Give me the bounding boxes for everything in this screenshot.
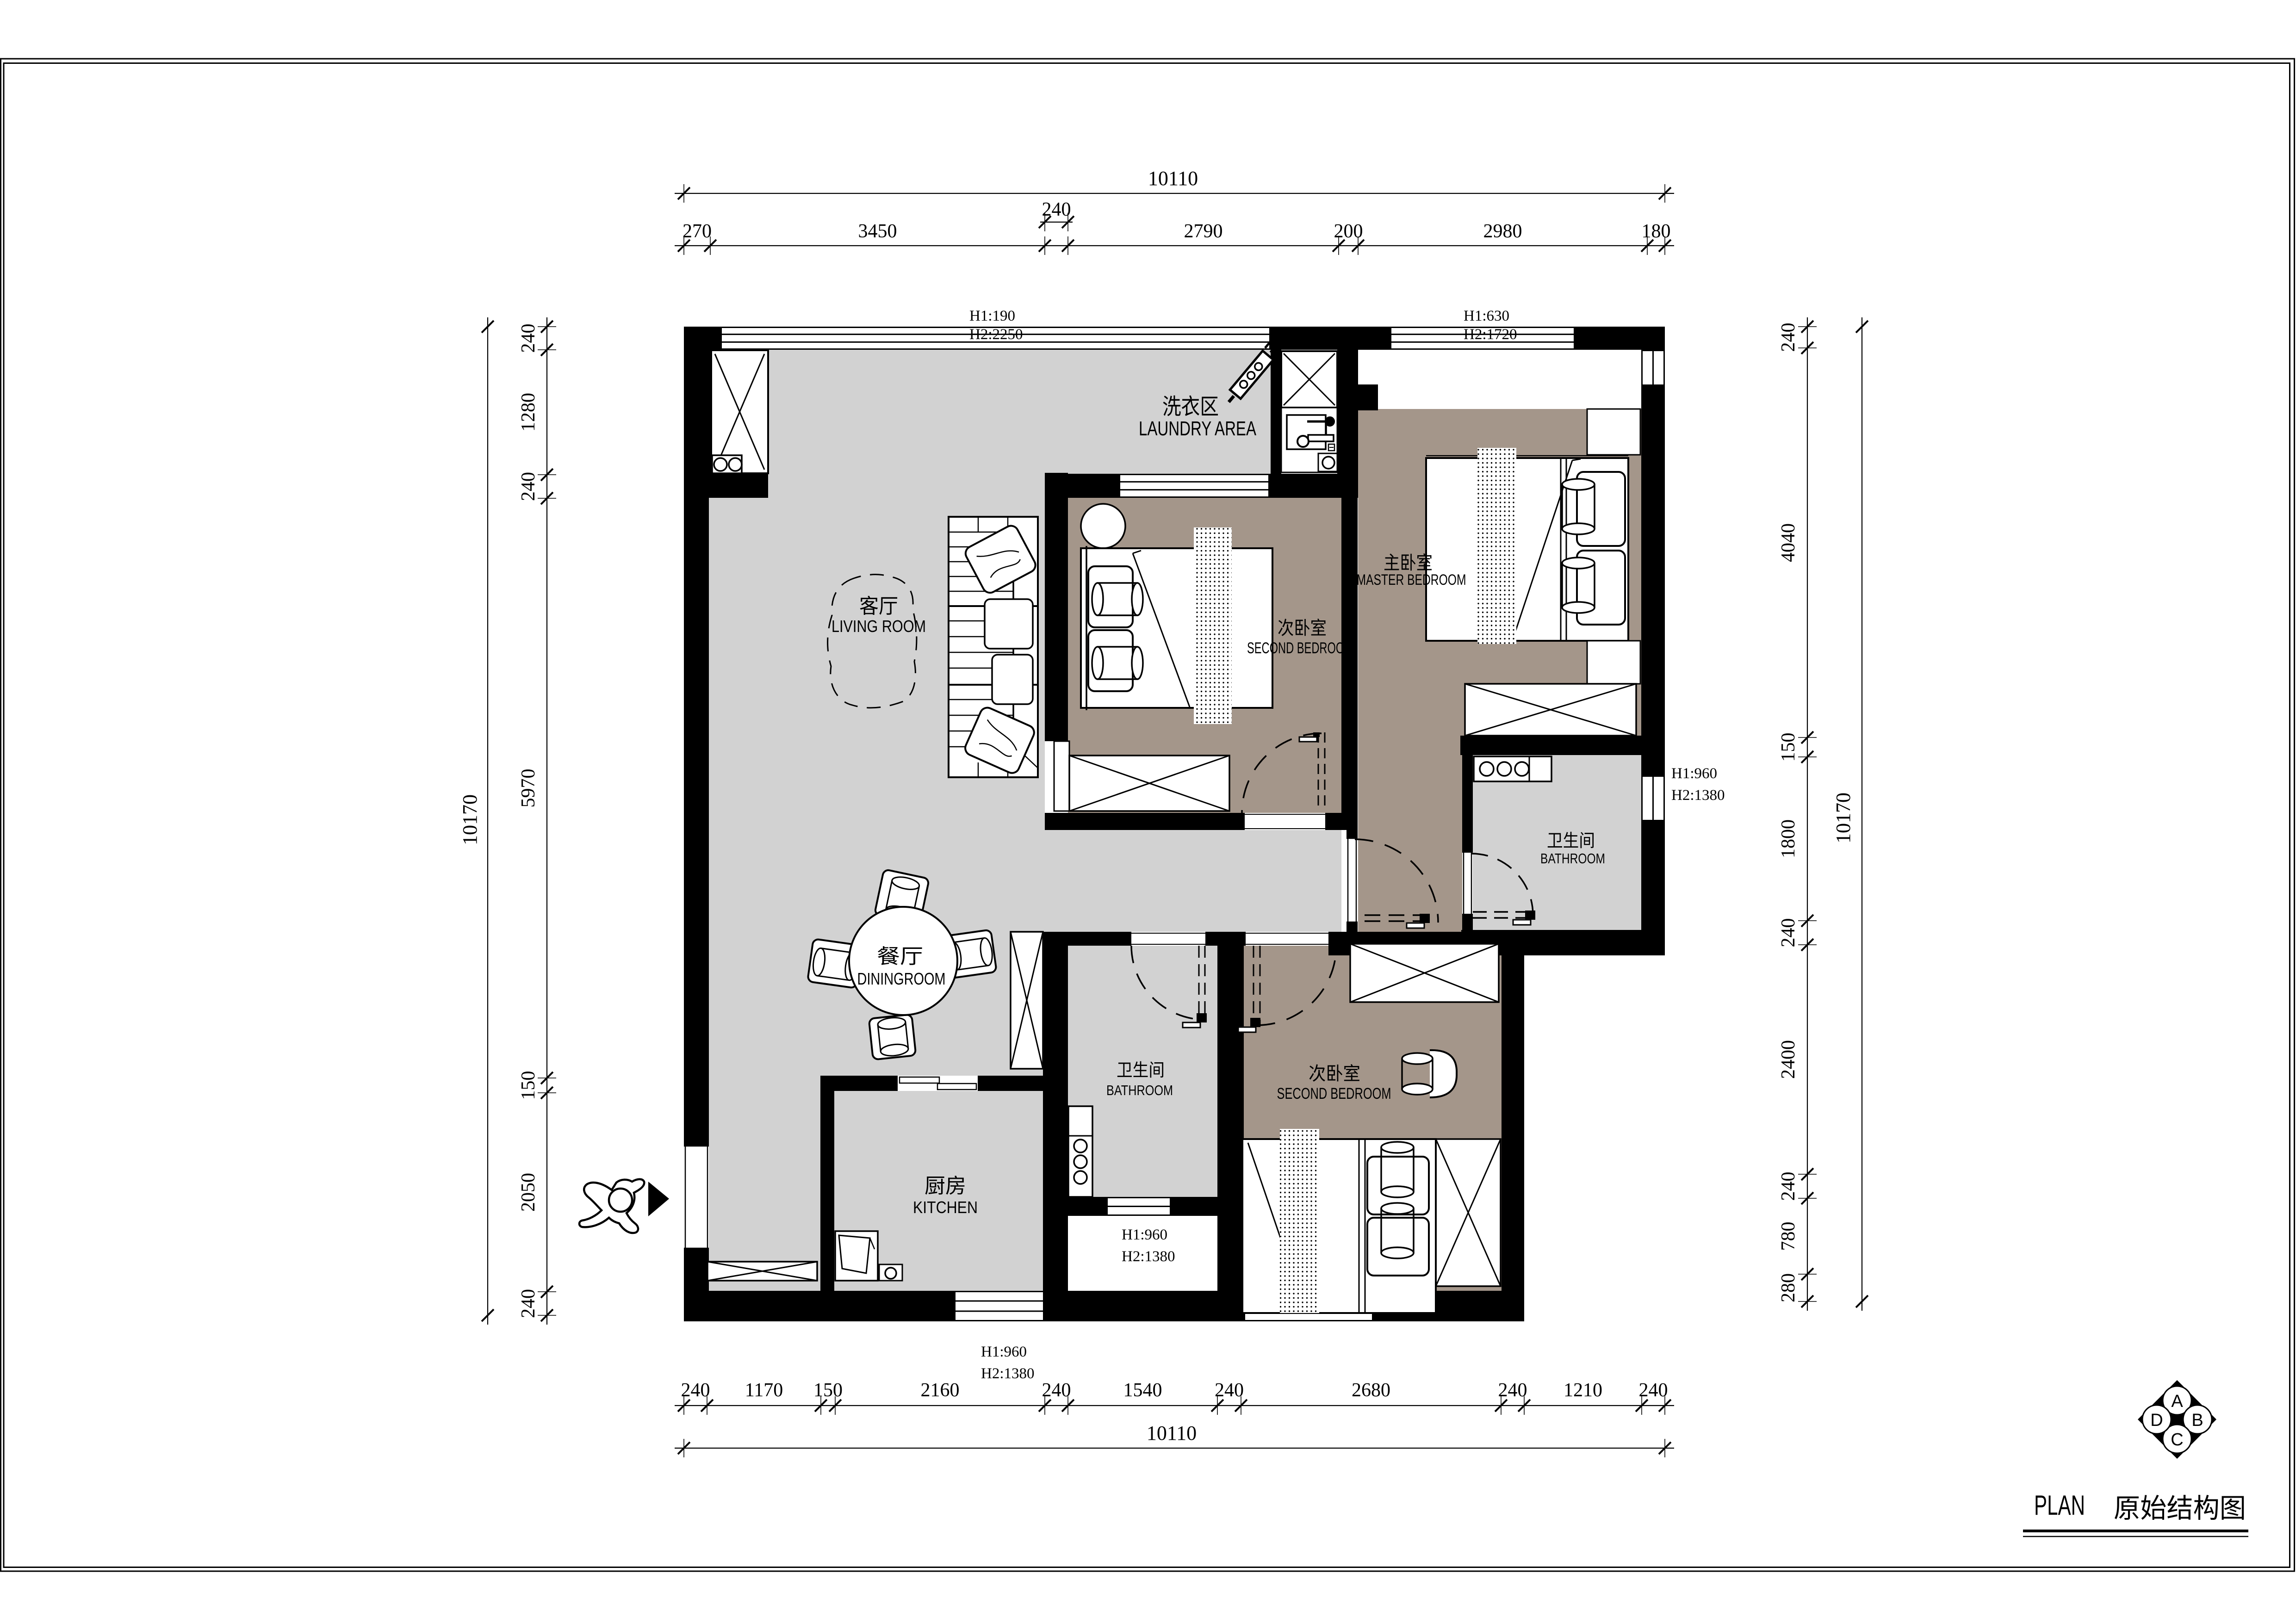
svg-text:D: D	[2150, 1411, 2163, 1430]
svg-text:10110: 10110	[1147, 1422, 1197, 1444]
svg-text:次卧室: 次卧室	[1278, 618, 1327, 638]
svg-text:240: 240	[1042, 199, 1071, 220]
svg-text:240: 240	[518, 324, 539, 353]
svg-text:C: C	[2171, 1430, 2183, 1450]
svg-text:主卧室: 主卧室	[1384, 553, 1433, 573]
svg-text:10170: 10170	[1832, 793, 1855, 843]
svg-text:H1:960: H1:960	[981, 1344, 1027, 1360]
svg-text:280: 280	[1778, 1273, 1799, 1302]
svg-text:150: 150	[518, 1071, 539, 1100]
svg-text:洗衣区: 洗衣区	[1162, 395, 1219, 419]
svg-text:2790: 2790	[1184, 221, 1223, 242]
svg-text:KITCHEN: KITCHEN	[913, 1198, 978, 1217]
svg-text:240: 240	[518, 1289, 539, 1318]
svg-text:240: 240	[1498, 1380, 1527, 1401]
svg-text:1800: 1800	[1778, 819, 1799, 858]
svg-text:2050: 2050	[518, 1173, 539, 1212]
svg-text:LIVING ROOM: LIVING ROOM	[832, 617, 926, 636]
svg-text:MASTER BEDROOM: MASTER BEDROOM	[1357, 571, 1466, 588]
svg-text:240: 240	[518, 472, 539, 501]
svg-text:5970: 5970	[518, 769, 539, 808]
svg-text:H2:1380: H2:1380	[1671, 787, 1725, 804]
svg-text:10170: 10170	[459, 794, 481, 845]
svg-text:150: 150	[1778, 733, 1799, 762]
svg-text:1540: 1540	[1123, 1380, 1162, 1401]
svg-text:次卧室: 次卧室	[1309, 1064, 1360, 1084]
svg-text:180: 180	[1642, 221, 1671, 242]
svg-text:H2:1720: H2:1720	[1464, 326, 1517, 343]
svg-text:4040: 4040	[1778, 523, 1799, 562]
svg-text:SECOND BEDROOM: SECOND BEDROOM	[1247, 639, 1353, 657]
svg-text:270: 270	[683, 221, 712, 242]
svg-text:卫生间: 卫生间	[1547, 831, 1595, 851]
svg-text:1280: 1280	[518, 393, 539, 432]
svg-text:10110: 10110	[1148, 167, 1198, 190]
svg-text:DININGROOM: DININGROOM	[857, 969, 946, 988]
svg-text:2680: 2680	[1352, 1380, 1390, 1401]
svg-text:卫生间: 卫生间	[1117, 1061, 1165, 1080]
svg-text:LAUNDRY AREA: LAUNDRY AREA	[1139, 417, 1256, 440]
svg-text:H2:2250: H2:2250	[969, 326, 1023, 343]
svg-text:240: 240	[1778, 323, 1799, 352]
svg-text:A: A	[2171, 1392, 2183, 1411]
svg-text:240: 240	[1215, 1380, 1244, 1401]
svg-text:BATHROOM: BATHROOM	[1106, 1082, 1173, 1098]
svg-text:BATHROOM: BATHROOM	[1540, 850, 1605, 867]
svg-text:1170: 1170	[745, 1380, 783, 1401]
svg-text:150: 150	[813, 1380, 843, 1401]
svg-text:2400: 2400	[1778, 1040, 1799, 1079]
svg-text:3450: 3450	[858, 221, 897, 242]
svg-text:B: B	[2191, 1411, 2203, 1430]
svg-text:240: 240	[681, 1380, 710, 1401]
svg-text:240: 240	[1778, 1172, 1799, 1201]
svg-text:240: 240	[1778, 918, 1799, 948]
svg-text:PLAN: PLAN	[2034, 1490, 2085, 1521]
svg-text:厨房: 厨房	[925, 1175, 966, 1197]
svg-text:SECOND BEDROOM: SECOND BEDROOM	[1277, 1085, 1391, 1103]
svg-text:240: 240	[1639, 1380, 1668, 1401]
svg-text:H2:1380: H2:1380	[1122, 1248, 1175, 1265]
svg-text:2980: 2980	[1483, 221, 1522, 242]
svg-text:240: 240	[1042, 1380, 1071, 1401]
svg-text:H2:1380: H2:1380	[981, 1365, 1035, 1382]
svg-text:780: 780	[1778, 1222, 1799, 1251]
svg-text:2160: 2160	[921, 1380, 960, 1401]
svg-text:H1:960: H1:960	[1122, 1227, 1167, 1243]
svg-text:H1:630: H1:630	[1464, 308, 1509, 324]
svg-text:H1:960: H1:960	[1671, 765, 1717, 782]
svg-text:1210: 1210	[1564, 1380, 1602, 1401]
svg-text:原始结构图: 原始结构图	[2114, 1493, 2246, 1524]
svg-text:200: 200	[1334, 221, 1363, 242]
svg-text:客厅: 客厅	[859, 595, 898, 618]
svg-text:H1:190: H1:190	[969, 308, 1015, 324]
svg-text:餐厅: 餐厅	[877, 945, 923, 968]
